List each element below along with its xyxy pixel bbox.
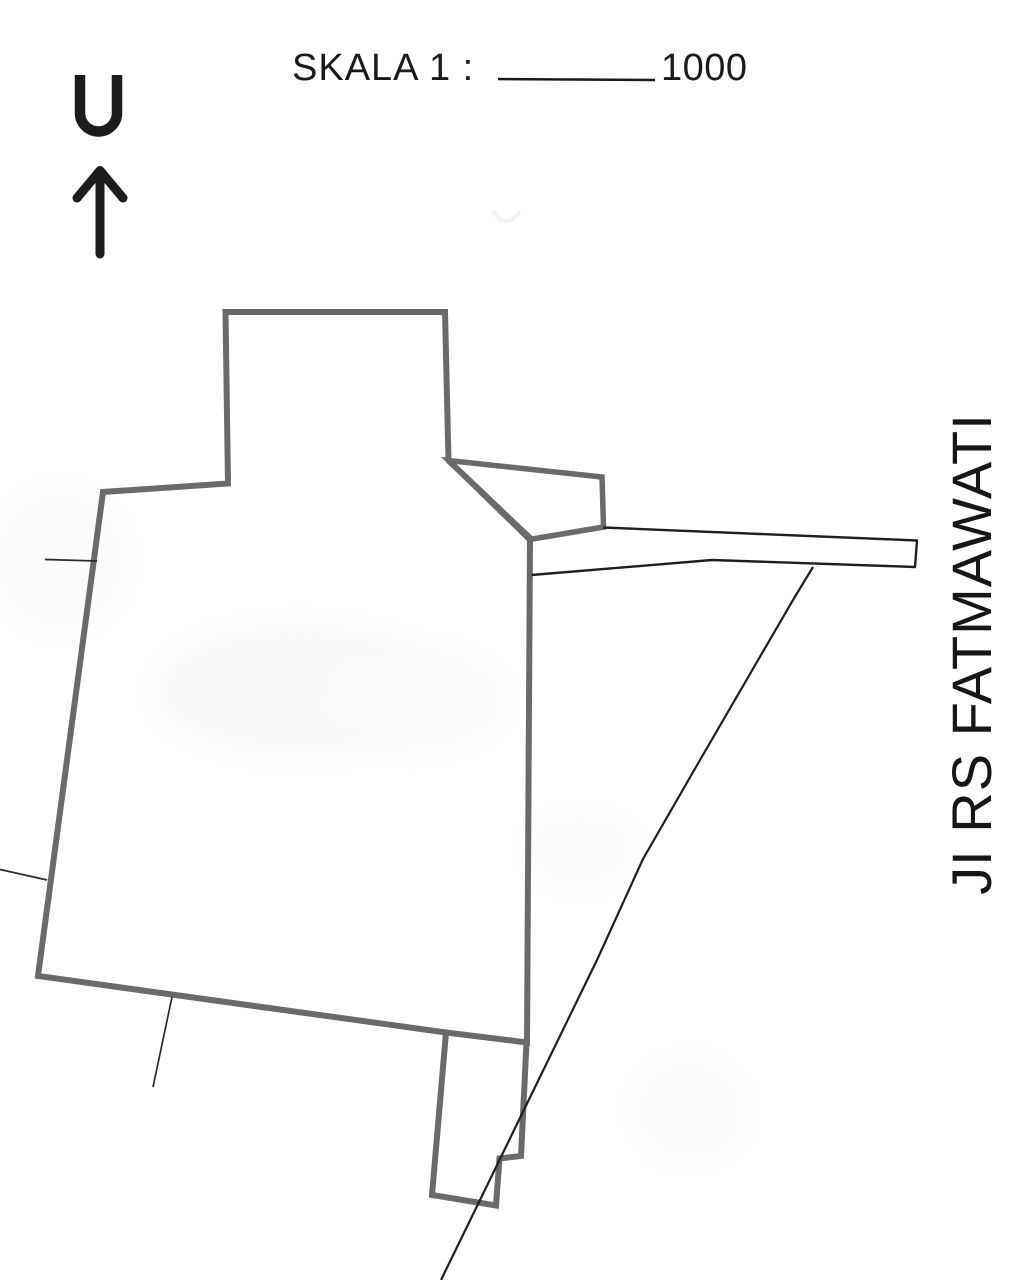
scale-header: SKALA 1 : 1000 bbox=[292, 47, 748, 89]
leader-line-south bbox=[153, 997, 172, 1087]
street-label: JI RS FATMAWATI bbox=[940, 413, 1003, 895]
parcel-annex-outline bbox=[432, 1033, 527, 1206]
scale-denominator: 1000 bbox=[661, 47, 748, 89]
north-letter-u bbox=[80, 75, 117, 132]
road-lines bbox=[441, 528, 917, 1280]
scale-blank-line bbox=[498, 79, 655, 80]
parcel-access-trapezoid bbox=[449, 461, 604, 540]
north-indicator bbox=[77, 75, 123, 254]
smudge-arc bbox=[494, 212, 519, 221]
road-strip-outline bbox=[532, 528, 918, 576]
site-plan-drawing: SKALA 1 : 1000 JI RS FATMAWATI bbox=[0, 0, 1024, 1280]
site-plan-page: SKALA 1 : 1000 JI RS FATMAWATI bbox=[0, 0, 1024, 1280]
leader-line-southwest bbox=[0, 870, 47, 881]
scale-label: SKALA 1 : bbox=[292, 47, 474, 89]
